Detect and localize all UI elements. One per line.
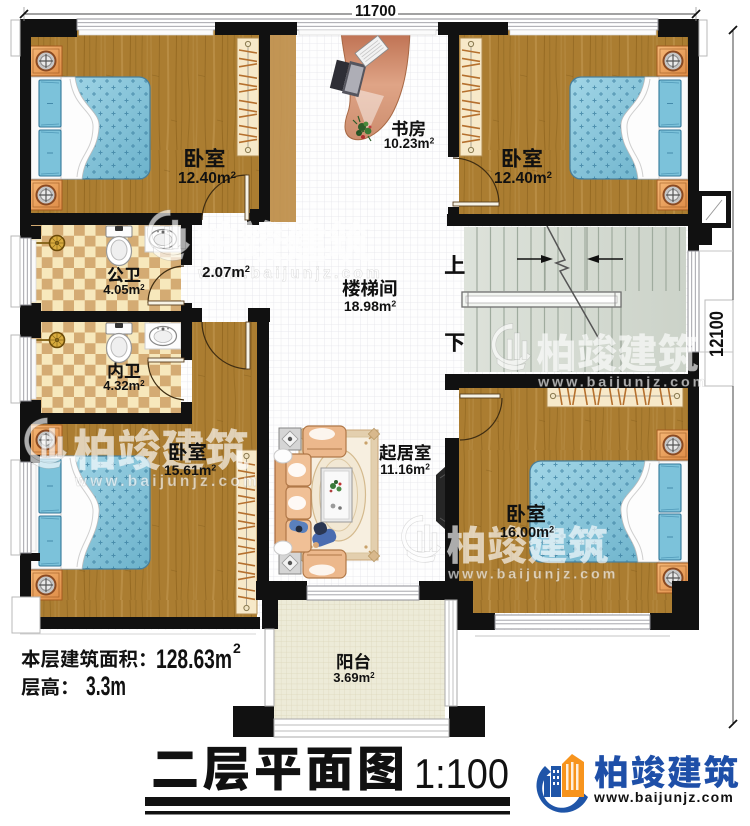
svg-text:15.61m2: 15.61m2 — [164, 462, 216, 478]
svg-text:12.40m2: 12.40m2 — [178, 170, 236, 187]
svg-text:12.40m2: 12.40m2 — [494, 170, 552, 187]
svg-text:4.32m2: 4.32m2 — [103, 378, 145, 393]
svg-text:3.69m2: 3.69m2 — [333, 670, 375, 685]
svg-text:11.16m2: 11.16m2 — [380, 462, 430, 477]
svg-text:www.baijunjz.com: www.baijunjz.com — [537, 374, 708, 390]
svg-text:4.05m2: 4.05m2 — [103, 282, 145, 297]
svg-text:3.3m: 3.3m — [86, 671, 126, 701]
svg-text:2.07m2: 2.07m2 — [202, 264, 250, 281]
svg-text:www.baijunjz.com: www.baijunjz.com — [447, 566, 618, 582]
svg-text:12100: 12100 — [707, 311, 728, 357]
svg-text:2: 2 — [233, 640, 241, 656]
svg-text:18.98m2: 18.98m2 — [344, 298, 396, 314]
svg-text:www.baijunjz.com: www.baijunjz.com — [593, 789, 734, 805]
svg-text:11700: 11700 — [355, 3, 396, 20]
svg-text:128.63m: 128.63m — [156, 644, 232, 674]
svg-text:16.00m2: 16.00m2 — [500, 524, 554, 541]
svg-text:10.23m2: 10.23m2 — [384, 136, 435, 151]
svg-text:1:100: 1:100 — [414, 750, 509, 797]
